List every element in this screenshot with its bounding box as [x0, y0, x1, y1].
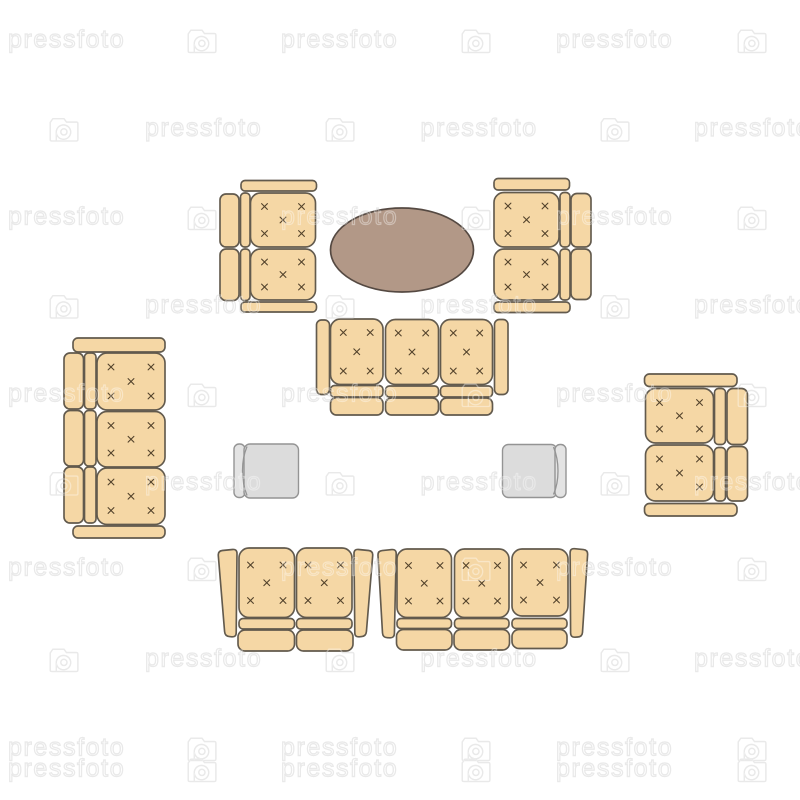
svg-text:pressfoto: pressfoto — [145, 468, 262, 496]
svg-text:pressfoto: pressfoto — [8, 755, 125, 783]
svg-text:pressfoto: pressfoto — [556, 26, 673, 54]
svg-text:pressfoto: pressfoto — [145, 114, 262, 142]
svg-text:pressfoto: pressfoto — [694, 114, 800, 142]
svg-text:pressfoto: pressfoto — [145, 291, 262, 319]
svg-text:pressfoto: pressfoto — [281, 26, 398, 54]
svg-text:pressfoto: pressfoto — [281, 554, 398, 582]
svg-text:pressfoto: pressfoto — [421, 468, 538, 496]
svg-text:pressfoto: pressfoto — [556, 554, 673, 582]
svg-text:pressfoto: pressfoto — [556, 203, 673, 231]
svg-text:pressfoto: pressfoto — [8, 554, 125, 582]
svg-text:pressfoto: pressfoto — [281, 755, 398, 783]
svg-text:pressfoto: pressfoto — [556, 755, 673, 783]
svg-text:pressfoto: pressfoto — [8, 203, 125, 231]
svg-text:pressfoto: pressfoto — [694, 291, 800, 319]
svg-text:pressfoto: pressfoto — [8, 380, 125, 408]
svg-text:pressfoto: pressfoto — [281, 380, 398, 408]
svg-text:pressfoto: pressfoto — [694, 645, 800, 673]
svg-text:pressfoto: pressfoto — [556, 380, 673, 408]
svg-text:pressfoto: pressfoto — [421, 114, 538, 142]
svg-text:pressfoto: pressfoto — [694, 468, 800, 496]
svg-text:pressfoto: pressfoto — [8, 26, 125, 54]
svg-text:pressfoto: pressfoto — [421, 291, 538, 319]
svg-text:pressfoto: pressfoto — [281, 203, 398, 231]
svg-text:pressfoto: pressfoto — [145, 645, 262, 673]
svg-text:pressfoto: pressfoto — [421, 645, 538, 673]
